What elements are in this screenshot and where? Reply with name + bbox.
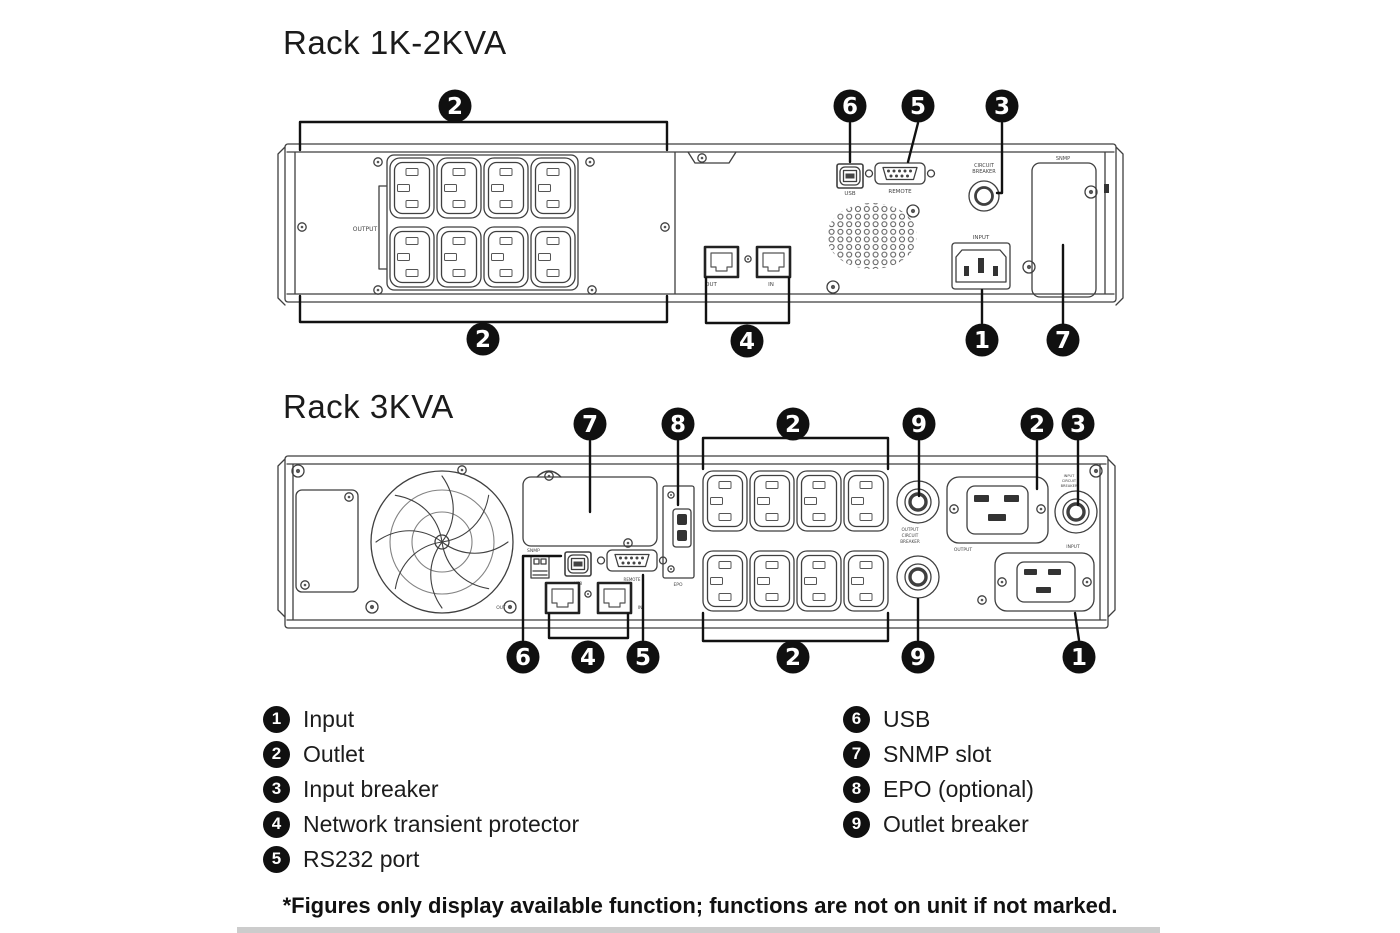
legend-badge-8: 8 <box>843 776 870 803</box>
callout-network-protector: 4 <box>731 325 764 358</box>
rack2-snmp-label: SNMP <box>527 548 540 554</box>
rack2-in-label: IN <box>638 605 643 611</box>
legend-label-outlet: Outlet <box>303 741 364 768</box>
callout-input: 1 <box>966 324 999 357</box>
legend-item-rs232: 5 RS232 port <box>263 844 419 874</box>
legend-badge-3: 3 <box>263 776 290 803</box>
footer-note: *Figures only display available function… <box>0 893 1400 919</box>
rack2-input-label: INPUT <box>1066 544 1080 550</box>
rack2-ocb-label-1: OUTPUT <box>901 527 919 532</box>
rack1-chassis <box>278 144 1123 305</box>
legend-label-epo: EPO (optional) <box>883 776 1034 803</box>
legend-badge-5: 5 <box>263 846 290 873</box>
callout-epo: 8 <box>662 408 695 441</box>
rack2-epo-label: EPO <box>673 582 683 588</box>
legend-badge-1: 1 <box>263 706 290 733</box>
svg-text:2: 2 <box>447 94 463 120</box>
svg-text:7: 7 <box>582 412 598 438</box>
callout-snmp-slot: 7 <box>1047 324 1080 357</box>
svg-text:9: 9 <box>910 645 926 671</box>
legend-label-network-protector: Network transient protector <box>303 811 579 838</box>
legend-badge-9: 9 <box>843 811 870 838</box>
svg-text:4: 4 <box>580 645 596 671</box>
svg-text:7: 7 <box>1055 328 1071 354</box>
rack1-remote-label: REMOTE <box>888 189 912 195</box>
callout-usb: 6 <box>507 641 540 674</box>
rack1-usb-label: USB <box>844 191 856 197</box>
rack2-ocb-label-3: BREAKER <box>900 539 920 544</box>
rack-ear-left <box>278 147 285 305</box>
svg-text:3: 3 <box>1070 412 1086 438</box>
rack1-input-label: INPUT <box>973 235 990 241</box>
legend-item-snmp: 7 SNMP slot <box>843 739 991 769</box>
svg-text:6: 6 <box>842 94 858 120</box>
rack1-diagram: OUTPUT OUT IN USB REMOTE CI <box>270 88 1138 366</box>
rack2-icb-label-1: INPUT <box>1064 474 1076 478</box>
legend-item-input: 1 Input <box>263 704 354 734</box>
rack2-icb-label-2: CIRCUIT <box>1062 479 1077 483</box>
rack2-remote-label: REMOTE <box>624 577 641 582</box>
rack1-title: Rack 1K-2KVA <box>283 24 507 62</box>
callout-outlet-bottom: 2 <box>467 323 500 356</box>
rack1-output-label: OUTPUT <box>353 226 378 233</box>
legend-badge-7: 7 <box>843 741 870 768</box>
svg-text:5: 5 <box>910 94 926 120</box>
manual-page: Rack 1K-2KVA Rack 3KVA <box>0 0 1400 933</box>
legend-label-outlet-breaker: Outlet breaker <box>883 811 1029 838</box>
callout-output-c19: 2 <box>1021 408 1054 441</box>
rack1-cb-label-2: BREAKER <box>972 169 996 175</box>
svg-text:4: 4 <box>739 329 755 355</box>
legend-label-snmp: SNMP slot <box>883 741 991 768</box>
callout-rs232: 5 <box>902 90 935 123</box>
callout-rs232: 5 <box>627 641 660 674</box>
rack1-snmp-label: SNMP <box>1056 156 1070 162</box>
rack2-icb-label-3: BREAKER <box>1061 484 1078 488</box>
svg-text:3: 3 <box>994 94 1010 120</box>
rack-ear-left <box>278 459 285 617</box>
callout-outlet-top: 2 <box>439 90 472 123</box>
callout-network-protector: 4 <box>572 641 605 674</box>
legend-label-input: Input <box>303 706 354 733</box>
page-bottom-edge <box>237 927 1160 933</box>
callout-snmp-slot: 7 <box>574 408 607 441</box>
callout-outlet-breaker-top: 9 <box>903 408 936 441</box>
svg-text:6: 6 <box>515 645 531 671</box>
rack2-output-label: OUTPUT <box>954 547 973 553</box>
callout-input-breaker: 3 <box>1062 408 1095 441</box>
legend-item-outlet-breaker: 9 Outlet breaker <box>843 809 1029 839</box>
svg-text:5: 5 <box>635 645 651 671</box>
svg-text:1: 1 <box>1071 645 1087 671</box>
legend-item-input-breaker: 3 Input breaker <box>263 774 439 804</box>
svg-text:2: 2 <box>785 645 801 671</box>
svg-text:2: 2 <box>475 327 491 353</box>
legend-badge-6: 6 <box>843 706 870 733</box>
legend-label-input-breaker: Input breaker <box>303 776 439 803</box>
callout-input-breaker: 3 <box>986 90 1019 123</box>
svg-text:2: 2 <box>785 412 801 438</box>
legend-label-usb: USB <box>883 706 930 733</box>
callout-outlet-top: 2 <box>777 408 810 441</box>
rack2-diagram: SNMP EPO <box>270 405 1138 695</box>
rack-ear-right <box>1116 147 1123 305</box>
legend-label-rs232: RS232 port <box>303 846 419 873</box>
callout-outlet-bottom: 2 <box>777 641 810 674</box>
svg-text:2: 2 <box>1029 412 1045 438</box>
legend-badge-2: 2 <box>263 741 290 768</box>
rack2-ocb-label-2: CIRCUIT <box>902 533 919 538</box>
callout-outlet-breaker-bottom: 9 <box>902 641 935 674</box>
rack-ear-right <box>1108 459 1115 617</box>
callout-input: 1 <box>1063 641 1096 674</box>
legend-item-network-protector: 4 Network transient protector <box>263 809 579 839</box>
rack2-out-label: OUT <box>496 605 506 611</box>
legend-item-usb: 6 USB <box>843 704 930 734</box>
svg-text:1: 1 <box>974 328 990 354</box>
legend-item-outlet: 2 Outlet <box>263 739 364 769</box>
legend-badge-4: 4 <box>263 811 290 838</box>
svg-text:9: 9 <box>911 412 927 438</box>
rack1-in-label: IN <box>768 282 774 288</box>
callout-usb: 6 <box>834 90 867 123</box>
legend-item-epo: 8 EPO (optional) <box>843 774 1034 804</box>
svg-text:8: 8 <box>670 412 686 438</box>
